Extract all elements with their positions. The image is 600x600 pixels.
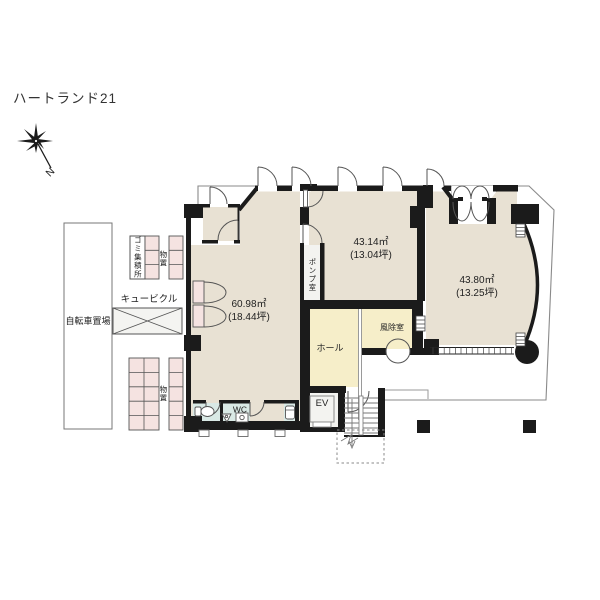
toilet-icon bbox=[195, 407, 214, 417]
unit-c-area-label: 43.80㎡ (13.25坪) bbox=[456, 274, 498, 300]
pilotis-column bbox=[417, 420, 430, 433]
corner-column bbox=[511, 204, 539, 224]
elevator-label: EV bbox=[316, 398, 329, 410]
storage-lower-label: 物置 bbox=[158, 386, 168, 403]
pump-room-label: ポンプ室 bbox=[307, 258, 317, 292]
windbreak-room-label: 風除室 bbox=[380, 323, 404, 333]
floorplan-page: ハートランド21 N 自転車置場 ゴミ集積所 物置 キュービクル 物置 60.9… bbox=[0, 0, 600, 600]
cubicle-label: キュービクル bbox=[121, 294, 178, 306]
compass-icon bbox=[17, 123, 53, 168]
unit-a-m2: 60.98㎡ bbox=[228, 298, 270, 311]
garbage-station-label: ゴミ集積所 bbox=[133, 236, 143, 279]
wc-label: WC bbox=[233, 404, 247, 415]
bicycle-parking-label: 自転車置場 bbox=[65, 316, 110, 328]
plan-title: ハートランド21 bbox=[13, 90, 117, 108]
unit-b-tsubo: (13.04坪) bbox=[350, 249, 392, 262]
vestibule-floor bbox=[203, 207, 238, 241]
unit-b-m2: 43.14㎡ bbox=[350, 236, 392, 249]
unit-a-tsubo: (18.44坪) bbox=[228, 311, 270, 324]
slop-sink-icon bbox=[286, 406, 295, 419]
pilotis-column bbox=[523, 420, 536, 433]
unit-c-m2: 43.80㎡ bbox=[456, 274, 498, 287]
unit-a-area-label: 60.98㎡ (18.44坪) bbox=[228, 298, 270, 324]
curtain-wall-ticks bbox=[433, 348, 511, 355]
closet bbox=[193, 281, 204, 303]
storage-upper-label: 物置 bbox=[158, 251, 168, 268]
closet bbox=[193, 305, 204, 327]
hall-label: ホール bbox=[316, 343, 343, 355]
unit-b-area-label: 43.14㎡ (13.04坪) bbox=[350, 236, 392, 262]
unit-c-tsubo: (13.25坪) bbox=[456, 287, 498, 300]
